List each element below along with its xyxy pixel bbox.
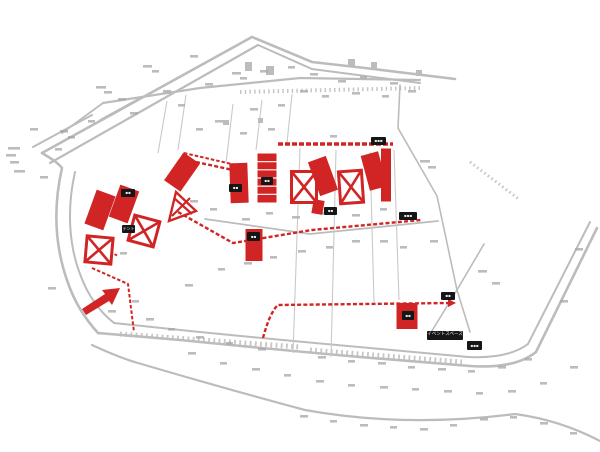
red-building [338,170,363,204]
site-plan-map: ▪▪テント▪▪▪▪▪▪▪▪▪▪▪▪▪▪▪イベントスペース▪▪▪▪▪▪ [0,0,600,452]
red-building [229,163,248,204]
red-building [246,229,263,261]
red-building [164,152,200,191]
gray-buildings [223,59,422,125]
red-building [128,215,160,247]
red-building [381,149,391,202]
red-building [85,236,113,264]
site-plan-canvas [0,0,600,452]
red-building [258,154,277,203]
road-tick-marks [120,88,520,362]
red-building [169,192,196,221]
red-building [292,172,317,203]
red-building [397,303,418,329]
red-building [84,190,115,231]
